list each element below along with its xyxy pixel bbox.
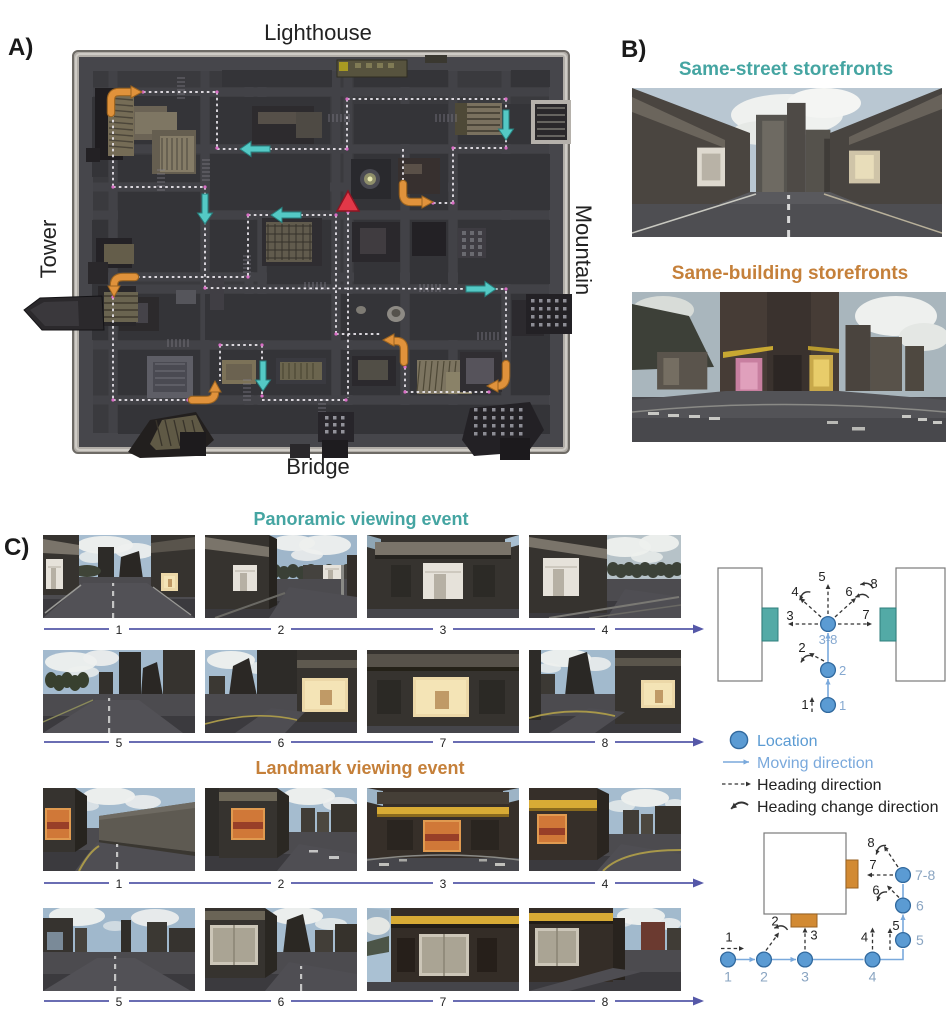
svg-text:6: 6: [278, 736, 285, 750]
svg-text:8: 8: [602, 995, 609, 1009]
svg-text:3: 3: [440, 877, 447, 891]
svg-text:2: 2: [760, 969, 768, 985]
svg-text:2: 2: [839, 663, 846, 678]
svg-text:3-8: 3-8: [819, 632, 838, 647]
svg-text:Heading direction: Heading direction: [757, 777, 882, 794]
svg-text:1: 1: [116, 877, 123, 891]
svg-text:4: 4: [791, 584, 798, 599]
svg-text:7: 7: [869, 857, 876, 872]
svg-text:1: 1: [724, 969, 732, 985]
svg-text:1: 1: [116, 623, 123, 637]
svg-text:Heading change direction: Heading change direction: [757, 799, 938, 816]
svg-text:4: 4: [869, 969, 877, 985]
svg-text:4: 4: [602, 623, 609, 637]
svg-text:6: 6: [872, 883, 879, 898]
svg-text:7: 7: [440, 995, 447, 1009]
svg-text:7-8: 7-8: [915, 867, 935, 883]
svg-text:8: 8: [870, 576, 877, 591]
svg-text:5: 5: [116, 995, 123, 1009]
svg-text:Lighthouse: Lighthouse: [264, 20, 372, 45]
svg-text:2: 2: [771, 914, 778, 929]
svg-text:Location: Location: [757, 733, 818, 750]
svg-text:8: 8: [602, 736, 609, 750]
svg-text:3: 3: [786, 608, 793, 623]
svg-text:A): A): [8, 34, 33, 61]
svg-text:3: 3: [440, 623, 447, 637]
svg-text:8: 8: [867, 835, 874, 850]
svg-text:2: 2: [798, 640, 805, 655]
svg-text:5: 5: [916, 932, 924, 948]
svg-text:1: 1: [839, 698, 846, 713]
svg-text:3: 3: [810, 928, 817, 943]
svg-text:Moving direction: Moving direction: [757, 755, 874, 772]
svg-text:6: 6: [845, 584, 852, 599]
svg-text:3: 3: [801, 969, 809, 985]
svg-text:4: 4: [861, 930, 868, 945]
svg-text:Bridge: Bridge: [286, 454, 350, 479]
svg-text:5: 5: [892, 918, 899, 933]
svg-text:2: 2: [278, 877, 285, 891]
svg-text:7: 7: [440, 736, 447, 750]
svg-text:4: 4: [602, 877, 609, 891]
svg-text:6: 6: [278, 995, 285, 1009]
svg-text:1: 1: [801, 697, 808, 712]
svg-text:7: 7: [862, 607, 869, 622]
svg-text:6: 6: [916, 898, 924, 914]
svg-text:5: 5: [116, 736, 123, 750]
svg-text:Mountain: Mountain: [571, 205, 596, 296]
svg-text:1: 1: [725, 930, 732, 945]
svg-text:Tower: Tower: [36, 220, 61, 279]
svg-text:5: 5: [818, 569, 825, 584]
svg-text:2: 2: [278, 623, 285, 637]
